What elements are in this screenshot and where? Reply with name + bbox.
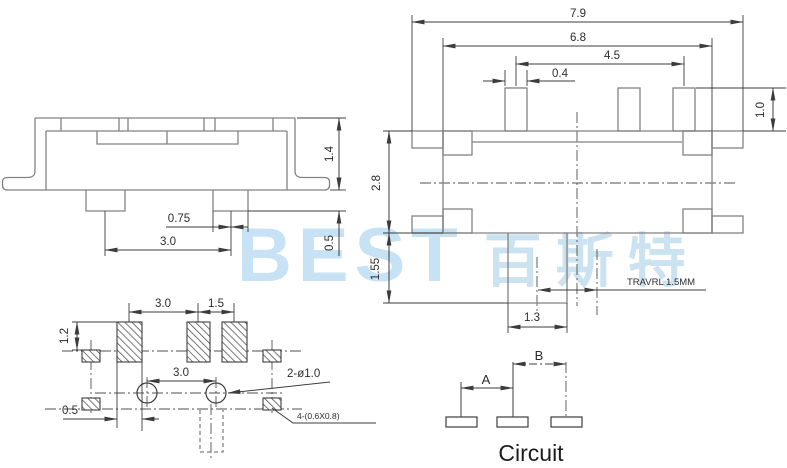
dim-text-knob-length: 1.55: [370, 258, 382, 280]
circuit-view: A B Circuit: [446, 348, 582, 466]
top-tab-top-left: [443, 131, 472, 155]
dim-text-edge-offset: 0.5: [62, 405, 78, 417]
hole-note-text: 2-ø1.0: [287, 368, 320, 380]
top-tab-top-right: [683, 131, 712, 155]
knob-projection-dashed: [200, 410, 223, 452]
dim-text-pin-span: 4.5: [604, 50, 620, 62]
dim-text-pad-height: 1.2: [59, 328, 71, 344]
mount-pad-bottom-left: [82, 398, 100, 410]
technical-drawing-page: BEST 百斯特: [0, 0, 787, 468]
solder-pad-2: [187, 322, 210, 362]
solder-pad-1: [117, 322, 142, 362]
circuit-terminal-3: [551, 417, 582, 427]
top-foot-bottom-right: [712, 216, 743, 233]
slot-note-text: 4-(0.6X0.8): [297, 411, 340, 421]
dim-text-hole-pitch: 3.0: [173, 367, 189, 379]
side-top-tick-marks: [61, 118, 273, 131]
dim-text-pin-height: 0.5: [324, 235, 336, 251]
circuit-terminal-1: [446, 417, 477, 427]
top-foot-bottom-left: [412, 216, 443, 233]
solder-pad-3: [222, 322, 247, 362]
dim-text-pad-pitch: 3.0: [155, 298, 171, 310]
mount-pad-top-left: [82, 350, 100, 362]
dim-text-position-b: B: [535, 348, 544, 363]
hole-leader-line: [228, 382, 330, 393]
top-view: 7.9 6.8 4.5 0.4 1.0 2.8 1.55 1.3 TRAVRL …: [370, 8, 786, 333]
mount-pad-top-right: [263, 350, 281, 362]
top-tab-bottom-right: [683, 209, 712, 233]
top-foot-top-right: [712, 131, 743, 148]
top-slider-knob: [508, 233, 567, 303]
side-right-pin: [213, 190, 248, 211]
top-pin-3: [673, 88, 695, 131]
dim-text-overall-width: 7.9: [570, 8, 586, 20]
top-tab-bottom-left: [443, 209, 472, 233]
dim-text-position-a: A: [482, 372, 491, 387]
dim-text-pin-width: 0.4: [552, 68, 569, 80]
side-slider-knob: [97, 131, 238, 144]
dim-text-pad-gap: 1.5: [208, 298, 224, 310]
dim-text-body-width: 6.8: [570, 32, 586, 44]
switch-drawing-svg: 3.0 0.75 1.4 0.5: [0, 0, 787, 468]
side-left-pin: [86, 190, 125, 211]
side-view: 3.0 0.75 1.4 0.5: [3, 118, 347, 256]
top-pin-2: [618, 88, 640, 131]
circuit-caption: Circuit: [498, 440, 564, 466]
dim-text-body-height: 2.8: [371, 175, 383, 191]
footprint-view: 3.0 1.5 1.2 3.0 2-ø1.0 0.5 4-(0.6X0.8): [45, 298, 376, 461]
dim-text-knob-width: 1.3: [524, 312, 540, 324]
dim-text-pin-length: 1.0: [755, 102, 767, 118]
circuit-terminal-2: [497, 417, 528, 427]
dim-text-pin-pitch: 3.0: [160, 236, 176, 248]
travel-note-text: TRAVRL 1.5MM: [627, 277, 695, 288]
dim-text-pin-width: 0.75: [168, 213, 190, 225]
top-pin-1: [505, 88, 527, 131]
top-body-outline: [443, 131, 712, 233]
dim-text-body-height: 1.4: [324, 145, 336, 162]
side-gullwing-feet-outline: [3, 171, 330, 190]
top-foot-top-left: [412, 131, 443, 148]
